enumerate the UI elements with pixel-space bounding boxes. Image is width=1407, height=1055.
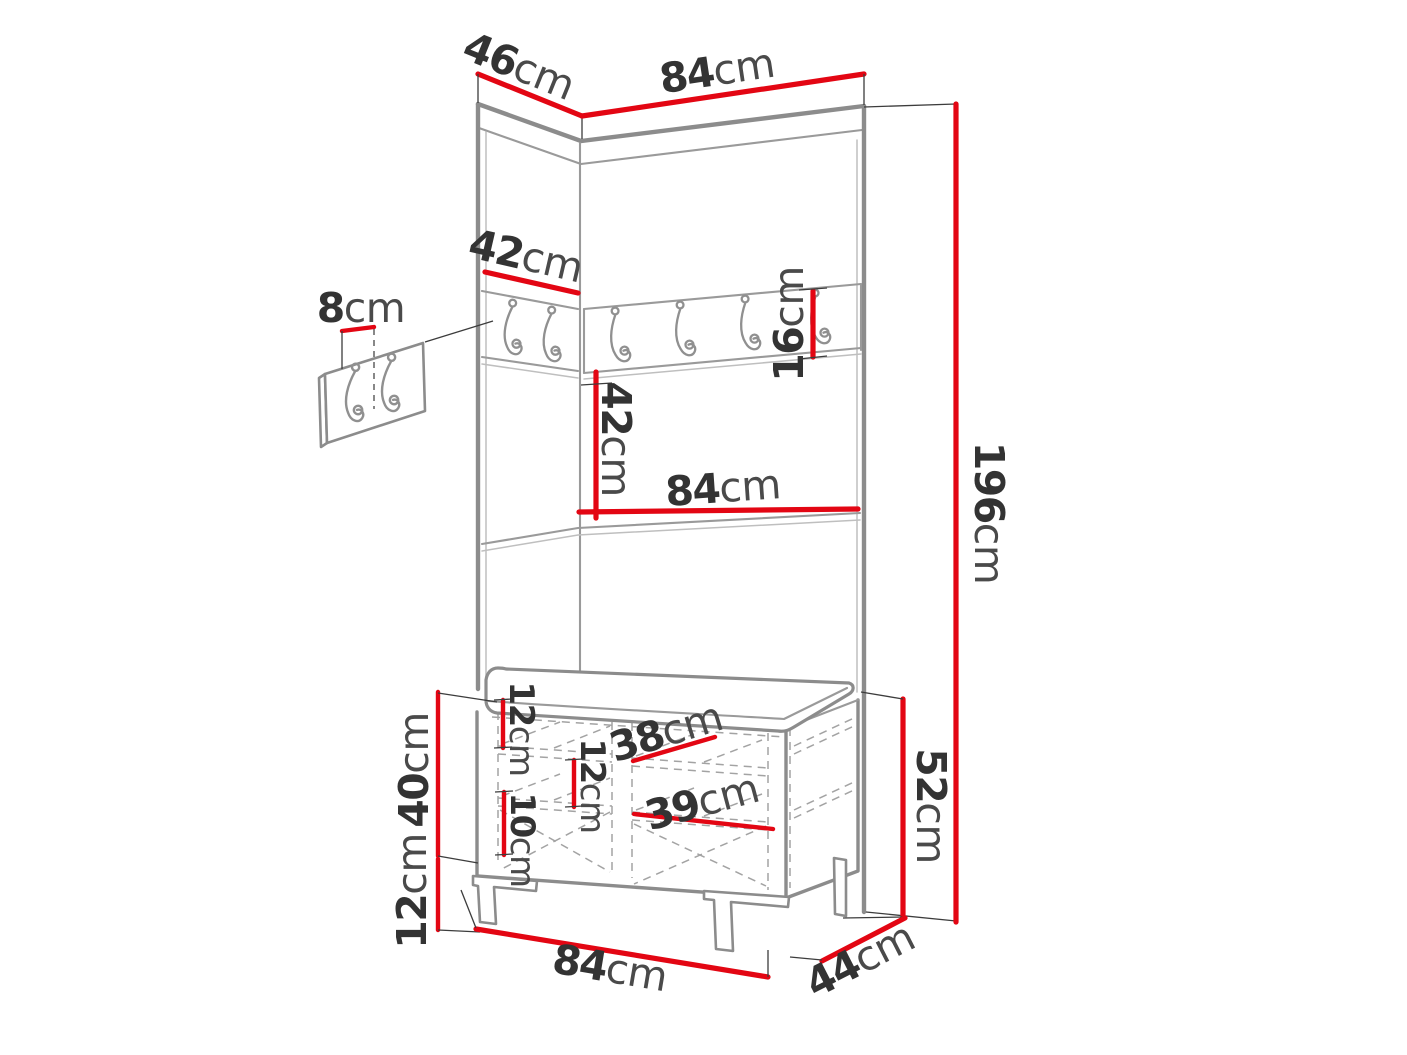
dimension-label-inner-gap: 10cm	[502, 792, 542, 887]
coat-hook-icon	[610, 307, 630, 362]
top-outer-edge	[478, 104, 864, 141]
coat-hook-icon	[675, 301, 695, 356]
rail-front-top-edge	[584, 284, 861, 309]
side-dashed	[794, 726, 854, 754]
extension-line	[866, 912, 956, 921]
coat-hook-icon	[740, 295, 760, 350]
dimension-label-total-height: 196cm	[965, 442, 1013, 585]
dimension-top-depth: 46cm	[456, 22, 582, 139]
dimension-label-top-width: 84cm	[656, 39, 777, 104]
dimension-label-panel-mid-height: 42cm	[592, 381, 640, 497]
extension-line	[861, 692, 903, 699]
dimension-label-top-depth: 46cm	[456, 22, 581, 110]
rail-left-bottom-edge	[482, 357, 578, 371]
rail-front-lip	[584, 354, 861, 379]
extension-line	[438, 930, 480, 932]
dimension-label-hook-offset: 8cm	[317, 284, 406, 332]
side-dashed	[794, 782, 854, 810]
shelf-front-edge	[482, 513, 860, 544]
dimension-label-door-inner-top: 12cm	[501, 681, 541, 776]
extension-line	[461, 890, 476, 928]
diagram-canvas: 46cm 84cm 196cm 42cm 16cm 8cm 42cm 84cm	[0, 0, 1407, 1055]
coat-hook-icon	[503, 299, 527, 355]
dimension-label-bench-body-height: 40cm	[390, 712, 438, 828]
dimension-inner-gap: 10cm	[495, 791, 542, 888]
dimension-inner-mid: 12cm	[565, 738, 612, 833]
dimension-label-bench-leg-height: 12cm	[388, 833, 436, 949]
detail-panel-face	[325, 343, 425, 443]
rail-left-lip	[482, 364, 578, 378]
dimension-label-rail-height: 16cm	[765, 266, 813, 382]
dimension-top-width: 84cm	[582, 39, 864, 116]
dimension-bench-depth: 44cm	[790, 912, 922, 1007]
dimension-label-bench-depth: 44cm	[798, 912, 923, 1007]
furniture-dimension-drawing: 46cm 84cm 196cm 42cm 16cm 8cm 42cm 84cm	[0, 0, 1407, 1055]
dimension-bench-height: 52cm	[843, 692, 955, 918]
coat-hook-icon	[542, 306, 566, 362]
extension-line	[864, 104, 956, 107]
dimension-right-door-width: 39cm	[634, 764, 773, 840]
dimension-panel-mid-height: 42cm	[581, 372, 640, 518]
dimension-rail-height: 16cm	[765, 266, 827, 382]
callout-line	[425, 321, 493, 342]
bench-leg-rear-right	[834, 858, 846, 916]
side-dashed	[794, 790, 854, 818]
dimension-bench-leg-height: 12cm	[388, 833, 480, 949]
dimension-rail-left-width: 42cm	[464, 220, 587, 293]
top-board-lower-edge	[479, 128, 862, 164]
rail-left-top-edge	[482, 291, 578, 309]
extension-line	[438, 856, 478, 863]
dimension-label-shelf-width: 84cm	[664, 460, 783, 516]
dimension-label-bench-height: 52cm	[907, 748, 955, 864]
depth-dashed	[704, 740, 762, 762]
bench-leg-front-right	[704, 891, 789, 951]
hook-detail-panel	[319, 321, 493, 447]
dimension-label-bench-width: 84cm	[549, 935, 671, 1001]
dimension-label-inner-mid: 12cm	[572, 738, 612, 833]
dimension-door-inner-top: 12cm	[494, 681, 541, 776]
